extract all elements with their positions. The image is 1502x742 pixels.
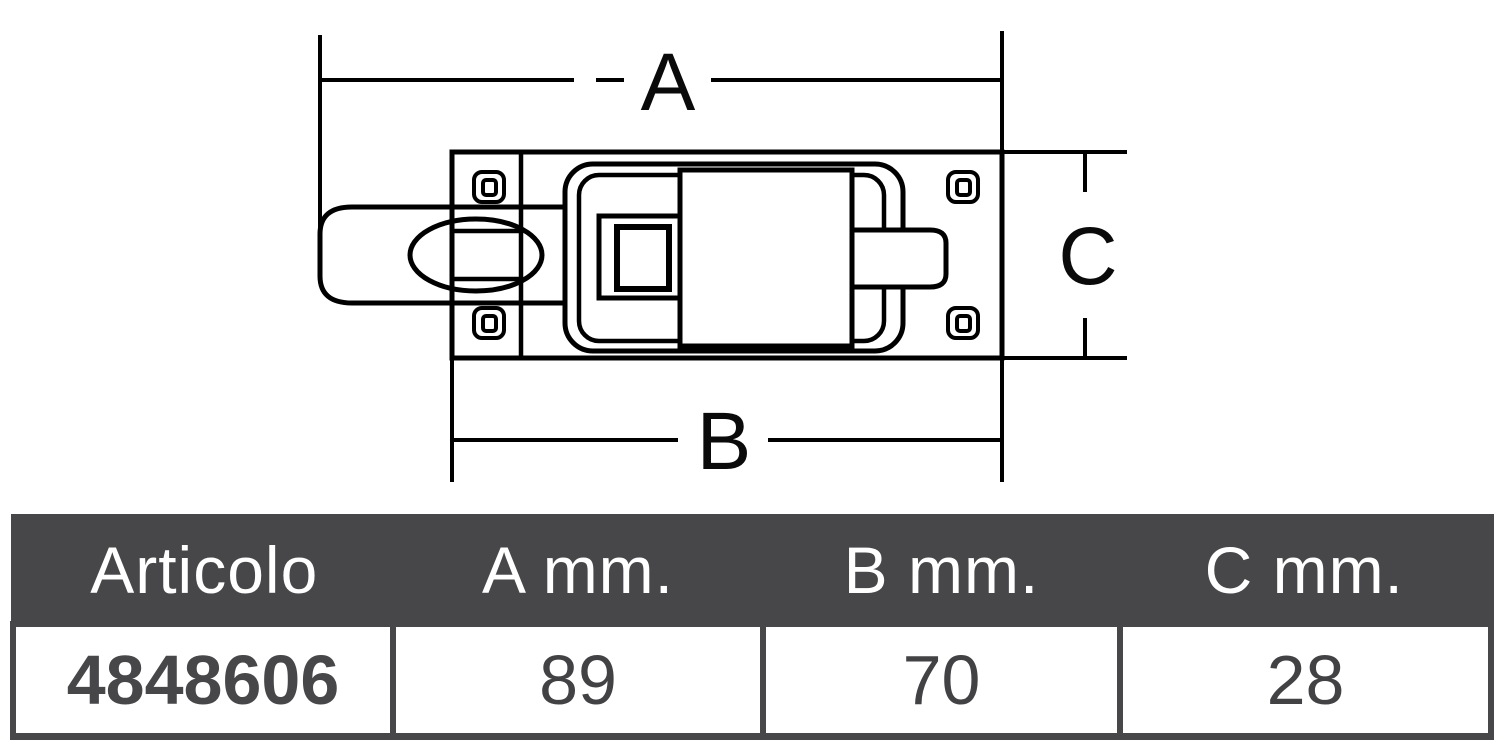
screw-bottom-right-icon [948, 308, 978, 338]
release-tab [852, 230, 946, 287]
screw-top-left-icon [474, 172, 504, 202]
spec-table: Articolo A mm. B mm. C mm. 4848606 89 70… [10, 514, 1494, 740]
screw-bottom-left-icon [474, 308, 504, 338]
dim-label-b: B [697, 396, 752, 487]
screw-top-right-icon [948, 172, 978, 202]
spec-table-data-row: 4848606 89 70 28 [13, 624, 1491, 737]
dim-label-c: C [1058, 211, 1117, 302]
header-b-mm: B mm. [763, 517, 1120, 625]
header-c-mm: C mm. [1120, 517, 1491, 625]
article-number: 4848606 [13, 624, 393, 737]
dim-label-a: A [641, 37, 696, 128]
header-a-mm: A mm. [393, 517, 763, 625]
value-b-mm: 70 [763, 624, 1120, 737]
spec-table-header-row: Articolo A mm. B mm. C mm. [13, 517, 1491, 625]
value-a-mm: 89 [393, 624, 763, 737]
latch-slide-block [680, 170, 852, 346]
value-c-mm: 28 [1120, 624, 1491, 737]
header-articolo: Articolo [13, 517, 393, 625]
page: A B C Articolo A mm. B mm. C mm. 4848606… [0, 0, 1502, 742]
catch-window [617, 227, 669, 289]
